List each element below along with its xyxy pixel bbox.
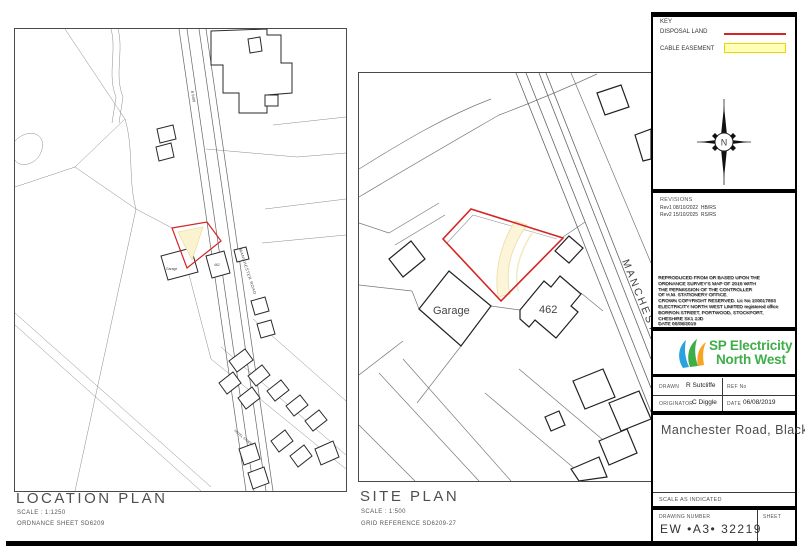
garage-label: Garage [166, 267, 177, 271]
copyright-notice: REPRODUCED FROM OR BASED UPON THE ORDNAN… [658, 276, 794, 328]
key-title: KEY [660, 19, 672, 25]
drawn-value: R Sutcliffe [686, 382, 716, 389]
key-disposal-label: DISPOSAL LAND [660, 29, 707, 35]
location-plan-title: LOCATION PLAN [16, 490, 167, 507]
drawing-title: Manchester Road, Blackrod. [661, 423, 805, 437]
street-label: HOTEL STREET [233, 429, 254, 448]
disposal-land-swatch [724, 33, 786, 35]
drawing-number-value: EW •A3• 32219 [660, 522, 762, 536]
originator-label: ORIGINATOR [659, 401, 693, 407]
sp-energy-flame-icon [673, 337, 707, 371]
date-label: DATE [727, 401, 741, 407]
b-road-label: B 5408 [190, 90, 196, 102]
revision-row: Rev1 08/10/2022 HB/RS [660, 205, 716, 212]
site-plan-grid-reference: GRID REFERENCE SD6209-27 [361, 521, 456, 527]
cable-easement-band [497, 221, 527, 297]
house-number-label: 462 [214, 263, 220, 267]
site-plan-scale: SCALE : 1:500 [361, 509, 406, 515]
cable-easement-swatch [724, 43, 786, 53]
ref-no-label: REF No [727, 384, 747, 390]
site-plan-title: SITE PLAN [360, 488, 459, 505]
site-buildings [389, 85, 651, 481]
drawing-sheet: B 5408 MANCHESTER ROAD HOTEL STREET Gara… [0, 0, 805, 555]
divider-after-compass [651, 189, 797, 193]
site-plan-panel: Garage 462 MANCHESTER ROAD [358, 72, 652, 482]
garage-label: Garage [433, 305, 470, 317]
titleblock-right-border [795, 12, 797, 546]
manchester-road-lines [516, 73, 651, 412]
location-plan-map: B 5408 MANCHESTER ROAD HOTEL STREET Gara… [15, 29, 346, 491]
logo-line2: North West [716, 352, 786, 367]
location-plan-ordnance-sheet: ORDNANCE SHEET SD6209 [17, 521, 105, 527]
sheet-label: SHEET [763, 514, 781, 520]
house-number-label: 462 [539, 304, 557, 316]
divider-after-credits [651, 411, 797, 415]
titleblock-left-border [651, 12, 653, 546]
logo-line1: SP Electricity [709, 338, 792, 353]
drawing-number-label: DRAWING NUMBER [659, 514, 710, 520]
compass-north-letter: N [721, 138, 728, 148]
site-plan-map: Garage 462 MANCHESTER ROAD [359, 73, 651, 481]
drawn-label: DRAWN [659, 384, 679, 390]
titleblock-top-bar [651, 12, 797, 17]
scale-note: SCALE AS INDICATED [659, 497, 722, 503]
key-easement-label: CABLE EASEMENT [660, 46, 714, 52]
date-value: 06/08/2019 [743, 399, 776, 406]
divider-before-number [651, 506, 797, 510]
originator-value: C Diggle [692, 399, 717, 406]
divider-credits-vertical [722, 378, 723, 411]
revision-row: Rev2 15/10/2025 RS/RS [660, 212, 716, 219]
location-plan-scale: SCALE : 1:1250 [17, 510, 66, 516]
sheet-bottom-bar [6, 541, 797, 546]
copyright-line: ELECTRICITY NORTH WEST LIMITED registere… [658, 305, 794, 311]
north-compass-icon: N [688, 96, 760, 188]
copyright-line: DATE 06/08/2019 [658, 322, 794, 328]
divider-after-logo [651, 374, 797, 377]
revisions-title: REVISIONS [660, 197, 693, 203]
location-plan-panel: B 5408 MANCHESTER ROAD HOTEL STREET Gara… [14, 28, 347, 492]
divider-drawn-originator [653, 395, 795, 396]
divider-before-scale-note [653, 492, 795, 493]
